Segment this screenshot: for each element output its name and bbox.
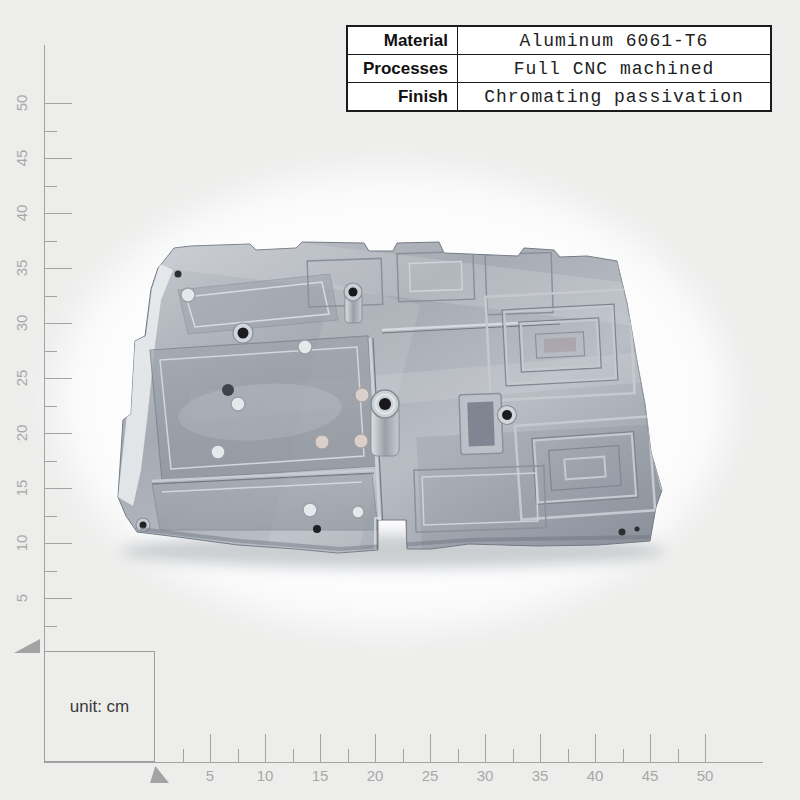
ruler-tick-minor <box>44 131 57 132</box>
page: 5101520253035404550 5101520253035404550 … <box>0 0 800 800</box>
ruler-tick-label: 30 <box>469 767 501 785</box>
center-hole <box>379 398 391 410</box>
horizontal-ruler-line <box>44 762 763 763</box>
ruler-tick-label: 45 <box>13 142 31 174</box>
ruler-tick-minor <box>183 749 184 762</box>
ruler-tick-minor <box>44 241 57 242</box>
ruler-tick-label: 35 <box>13 252 31 284</box>
ruler-tick-minor <box>44 186 57 187</box>
ruler-tick-major <box>44 158 72 159</box>
ruler-tick-label: 25 <box>414 767 446 785</box>
ruler-tick-label: 40 <box>579 767 611 785</box>
ruler-tick-label: 5 <box>194 767 226 785</box>
ruler-tick-label: 15 <box>304 767 336 785</box>
ruler-tick-major <box>44 378 72 379</box>
ruler-tick-minor <box>44 406 57 407</box>
spec-label: Processes <box>347 55 458 83</box>
ruler-tick-minor <box>348 749 349 762</box>
ruler-tick-label: 30 <box>13 307 31 339</box>
ruler-tick-minor <box>44 516 57 517</box>
ruler-tick-major <box>44 323 72 324</box>
ruler-tick-minor <box>513 749 514 762</box>
ruler-tick-major <box>320 734 321 762</box>
spec-label: Material <box>347 26 458 55</box>
ruler-tick-label: 50 <box>689 767 721 785</box>
ruler-tick-major <box>540 734 541 762</box>
unit-note-label: unit: cm <box>70 697 130 717</box>
spec-label: Finish <box>347 83 458 112</box>
ruler-tick-label: 5 <box>13 582 31 614</box>
ruler-tick-minor <box>44 296 57 297</box>
table-row: Processes Full CNC machined <box>347 55 771 83</box>
unit-note-box: unit: cm <box>44 651 155 762</box>
spec-table: Material Aluminum 6061-T6 Processes Full… <box>346 25 772 112</box>
ruler-tick-major <box>44 488 72 489</box>
ruler-tick-minor <box>44 351 57 352</box>
spec-value: Full CNC machined <box>458 55 772 83</box>
ruler-tick-minor <box>678 749 679 762</box>
ruler-tick-major <box>44 598 72 599</box>
ruler-tick-major <box>44 103 72 104</box>
ruler-tick-label: 20 <box>359 767 391 785</box>
ruler-tick-label: 45 <box>634 767 666 785</box>
ruler-tick-major <box>210 734 211 762</box>
ruler-tick-major <box>44 213 72 214</box>
ruler-tick-label: 10 <box>249 767 281 785</box>
ruler-tick-major <box>44 543 72 544</box>
ruler-tick-major <box>485 734 486 762</box>
ruler-tick-minor <box>293 749 294 762</box>
ruler-tick-minor <box>44 626 57 627</box>
table-row: Material Aluminum 6061-T6 <box>347 26 771 55</box>
ruler-tick-minor <box>403 749 404 762</box>
ruler-tick-major <box>375 734 376 762</box>
ruler-tick-label: 20 <box>13 417 31 449</box>
ruler-tick-minor <box>44 461 57 462</box>
ruler-tick-minor <box>238 749 239 762</box>
ruler-tick-major <box>595 734 596 762</box>
ruler-tick-label: 40 <box>13 197 31 229</box>
ruler-tick-major <box>705 734 706 762</box>
ruler-tick-major <box>44 268 72 269</box>
ruler-tick-minor <box>568 749 569 762</box>
ruler-tick-label: 15 <box>13 472 31 504</box>
ruler-tick-label: 10 <box>13 527 31 559</box>
table-row: Finish Chromating passivation <box>347 83 771 112</box>
ruler-tick-label: 50 <box>13 87 31 119</box>
ruler-tick-minor <box>458 749 459 762</box>
ruler-tick-major <box>265 734 266 762</box>
spec-value: Chromating passivation <box>458 83 772 112</box>
ruler-tick-minor <box>44 571 57 572</box>
ruler-tick-minor <box>623 749 624 762</box>
ruler-tick-label: 25 <box>13 362 31 394</box>
ruler-tick-major <box>430 734 431 762</box>
ruler-tick-major <box>44 433 72 434</box>
ruler-tick-label: 35 <box>524 767 556 785</box>
ruler-tick-major <box>650 734 651 762</box>
spec-value: Aluminum 6061-T6 <box>458 26 772 55</box>
